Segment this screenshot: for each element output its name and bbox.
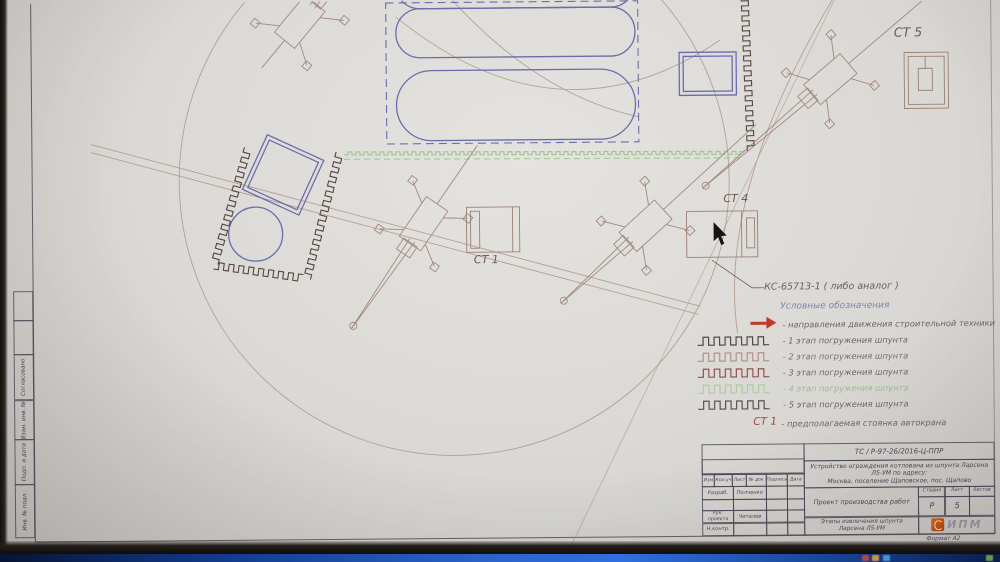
sheet-number: 5 — [945, 496, 970, 517]
legend-item: - 4 этап погружения шпунта — [783, 382, 909, 393]
legend-item: - 3 этап погружения шпунта — [783, 366, 909, 377]
org-logo-cell: ИПМ — [919, 515, 996, 534]
station-label-st5: СТ 5 — [894, 24, 922, 39]
side-stamp-vzam-inv: Взам. инв. № — [14, 400, 34, 440]
side-stamp: Согласовано Взам. инв. № Подп. и дата Ин… — [13, 291, 35, 538]
mouse-cursor-icon[interactable] — [714, 222, 727, 245]
monitor-photo: СТ 1 СТ 4 СТ 5 КС-65713-1 ( либо аналог … — [0, 0, 1000, 562]
legend-zigzag-stage3 — [695, 366, 775, 381]
taskbar-icon[interactable] — [872, 555, 879, 561]
legend-zigzag-stage5 — [695, 398, 775, 413]
taskbar-icon[interactable] — [986, 555, 993, 561]
row-name: Полченко — [733, 486, 767, 500]
legend-zigzag-stage1 — [695, 334, 775, 349]
legend-item: - 5 этап погружения шпунта — [783, 398, 909, 409]
row-role: Разраб. — [702, 486, 734, 500]
blue-circle-pad — [228, 207, 282, 261]
legend-item: - 2 этап погружения шпунта — [783, 350, 909, 361]
side-stamp-empty — [13, 320, 33, 355]
doc-type-cell: Проект производства работ — [804, 486, 919, 517]
crane-model-callout: КС-65713-1 ( либо аналог ) — [764, 281, 899, 293]
drawing-sheet: СТ 1 СТ 4 СТ 5 КС-65713-1 ( либо аналог … — [0, 0, 1000, 562]
sheets-total — [969, 495, 995, 516]
side-stamp-inv-podl: Инв. № подл. — [15, 484, 35, 538]
monitor-bezel-left — [0, 0, 8, 562]
org-name: ИПМ — [947, 518, 982, 532]
row-date — [787, 522, 805, 536]
monitor-bezel-bottom — [0, 541, 1000, 554]
project-title-cell: Устройство ограждения котлована из шпунт… — [804, 459, 995, 488]
legend-zigzag-stage2 — [695, 350, 775, 365]
side-stamp-empty — [13, 291, 33, 321]
station-label-st1: СТ 1 — [474, 253, 499, 266]
excavation-outline — [226, 0, 738, 261]
side-stamp-soglasovano: Согласовано — [14, 355, 34, 401]
project-line1: Устройство ограждения котлована из шпунт… — [809, 461, 990, 478]
row-role: Н.контр. — [702, 523, 734, 537]
legend-station-label: - предполагаемая стоянка автокрана — [781, 417, 946, 428]
row-name — [733, 522, 767, 536]
col-koluch: Кол.уч — [714, 474, 733, 487]
legend-direction-label: - направления движения строительной техн… — [782, 318, 995, 330]
sheet-title-cell: Этапы извлечения шпунта Ларсена Л5-УМ — [804, 516, 919, 535]
row-sign — [766, 510, 788, 523]
side-stamp-podp-data: Подп. и дата — [14, 439, 34, 485]
taskbar[interactable] — [0, 554, 1000, 562]
taskbar-icon[interactable] — [862, 555, 869, 561]
org-logo-icon — [931, 518, 944, 531]
title-block: Изм Кол.уч Лист № док Подпись Дата Разра… — [701, 442, 995, 537]
taskbar-icon[interactable] — [883, 555, 890, 561]
legend-item: - 1 этап погружения шпунта — [783, 334, 909, 345]
row-date — [787, 485, 805, 499]
legend-zigzag-stage4 — [695, 382, 775, 397]
stage-value: Р — [918, 496, 945, 517]
direction-arrow-icon — [750, 317, 778, 330]
legend: КС-65713-1 ( либо аналог ) Условные обоз… — [690, 276, 1000, 444]
green-boundary-line — [344, 148, 744, 161]
legend-station-key: СТ 1 — [753, 416, 777, 428]
row-sign — [766, 486, 788, 500]
col-data: Дата — [787, 473, 805, 486]
col-izm: Изм — [702, 474, 715, 487]
row-date — [787, 510, 805, 523]
legend-title: Условные обозначения — [780, 301, 889, 312]
project-line2: Москва, поселение Щаповское, пос. Щапово — [827, 477, 971, 486]
station-labels: СТ 1 СТ 4 СТ 5 — [472, 24, 924, 266]
row-sign — [766, 522, 788, 536]
station-label-st4: СТ 4 — [723, 192, 748, 205]
col-list: Лист — [732, 474, 747, 487]
